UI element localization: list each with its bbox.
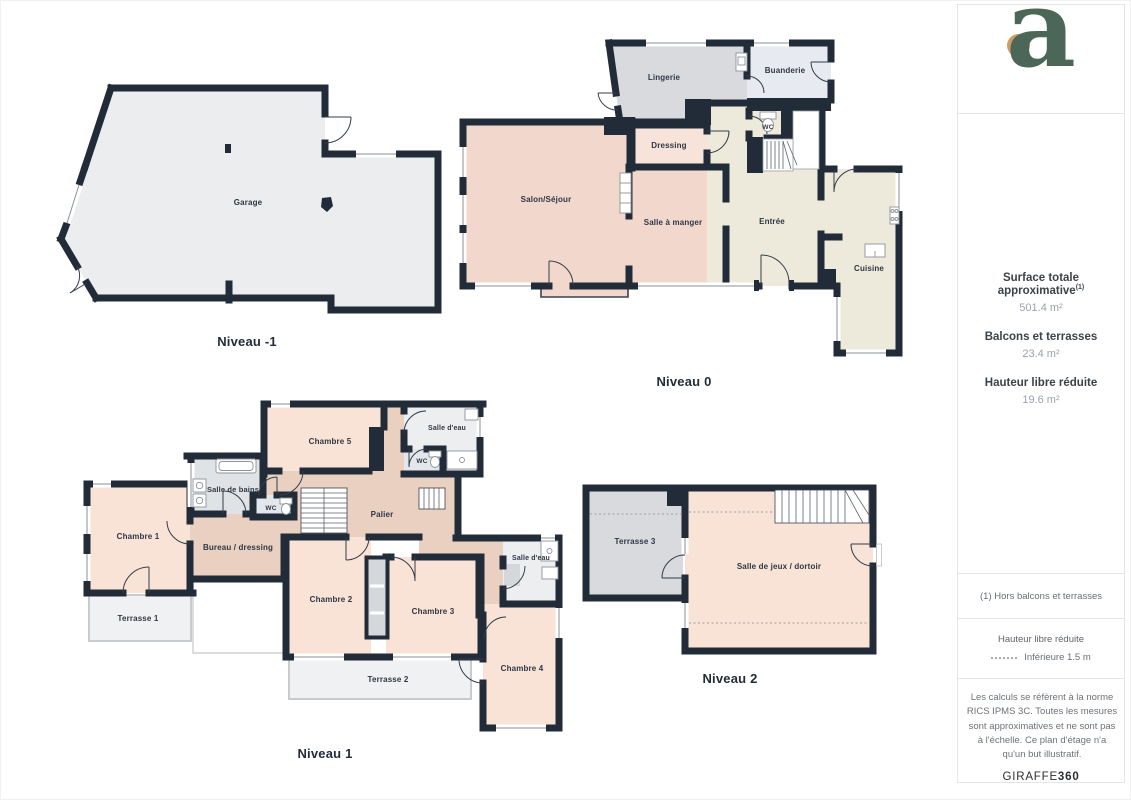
surface-total-label: Surface totale approximative — [998, 272, 1079, 297]
floor-title-niveau-0: Niveau 0 — [656, 374, 711, 389]
room-label-wc: WC — [416, 458, 427, 465]
room-label-salle-de-bains: Salle de bains — [207, 485, 259, 494]
sink-icon — [193, 494, 206, 507]
dashed-line-icon — [991, 657, 1017, 659]
toilet-icon — [760, 112, 776, 119]
floor-title-niveau-m1: Niveau -1 — [217, 334, 277, 349]
measurements-panel: Surface totale approximative(1) 501.4 m²… — [958, 114, 1124, 574]
room-label-lingerie: Lingerie — [648, 73, 681, 82]
brand-logo: GIRAFFE360 — [966, 771, 1116, 783]
room-label-chambre2: Chambre 2 — [310, 595, 353, 604]
legend-row: Inférieure 1.5 m — [991, 652, 1091, 663]
floorplan-niveau-1: Chambre 1 Chambre 2 Chambre 3 Chambre 4 … — [79, 396, 571, 736]
room-label-terrasse1: Terrasse 1 — [118, 614, 159, 623]
sink-icon — [465, 409, 478, 420]
room-label-chambre3: Chambre 3 — [412, 607, 455, 616]
room-label-palier: Palier — [371, 510, 394, 519]
legend-value: Inférieure 1.5 m — [1024, 652, 1091, 663]
room-label-buanderie: Buanderie — [765, 66, 806, 75]
rooms-n1 — [87, 404, 559, 728]
info-sidebar: a Surface totale approximative(1) 501.4 … — [957, 4, 1125, 783]
reduced-height-title: Hauteur libre réduite — [964, 377, 1118, 389]
room-label-cuisine: Cuisine — [854, 264, 884, 273]
room-label-terrasse2: Terrasse 2 — [368, 675, 409, 684]
floorplan-niveau-m1: Garage — [46, 76, 451, 331]
room-label-chambre1: Chambre 1 — [117, 532, 160, 541]
room-label-salle-a-manger: Salle à manger — [644, 218, 703, 227]
legend-title: Hauteur libre réduite — [998, 634, 1084, 645]
disclaimer-panel: Les calculs se réfèrent à la norme RICS … — [958, 679, 1124, 782]
room-label-entree: Entrée — [759, 217, 785, 226]
brand-name: GIRAFFE — [1002, 771, 1057, 783]
floor-title-niveau-1: Niveau 1 — [297, 746, 352, 761]
disclaimer-text: Les calculs se réfèrent à la norme RICS … — [966, 691, 1118, 762]
floor-title-niveau-2: Niveau 2 — [702, 671, 757, 686]
room-label-salle-de-jeux: Salle de jeux / dortoir — [737, 562, 821, 571]
room-label-dressing: Dressing — [651, 141, 686, 150]
brand-number: 360 — [1058, 771, 1080, 783]
logo: a — [958, 5, 1124, 114]
footnote: (1) Hors balcons et terrasses — [958, 574, 1124, 619]
footnote-marker: (1) — [1076, 284, 1085, 291]
floorplan-niveau-2: Terrasse 3 Salle de jeux / dortoir — [579, 481, 879, 657]
room-label-chambre4: Chambre 4 — [501, 664, 544, 673]
logo-letter: a — [958, 0, 1124, 83]
room-label-salle-deau: Salle d'eau — [512, 555, 550, 562]
balconies-title: Balcons et terrasses — [964, 331, 1118, 343]
sink-icon — [542, 567, 558, 579]
balconies-value: 23.4 m² — [958, 348, 1124, 360]
room-label-salon: Salon/Séjour — [521, 195, 572, 204]
room-label-chambre5: Chambre 5 — [309, 437, 352, 446]
floorplan-niveau-0: Lingerie Buanderie WC Dressing Salon/Séj… — [451, 35, 911, 365]
room-label-wc: WC — [265, 505, 276, 512]
floorplan-document: Garage Niveau -1 — [0, 0, 1131, 800]
surface-total-value: 501.4 m² — [958, 302, 1124, 314]
room-label-wc: WC — [762, 124, 773, 131]
labels-m1: Garage — [234, 198, 263, 207]
room-label-terrasse3: Terrasse 3 — [615, 537, 656, 546]
room-label-salle-deau: Salle d'eau — [428, 425, 466, 432]
room-label-garage: Garage — [234, 198, 263, 207]
surface-total-title: Surface totale approximative(1) — [964, 272, 1118, 297]
sink-icon — [193, 479, 206, 492]
shower-icon — [447, 451, 477, 469]
room-label-bureau: Bureau / dressing — [203, 543, 273, 552]
reduced-height-value: 19.6 m² — [958, 394, 1124, 406]
legend-panel: Hauteur libre réduite Inférieure 1.5 m — [958, 619, 1124, 679]
stairs-n2 — [775, 490, 869, 523]
